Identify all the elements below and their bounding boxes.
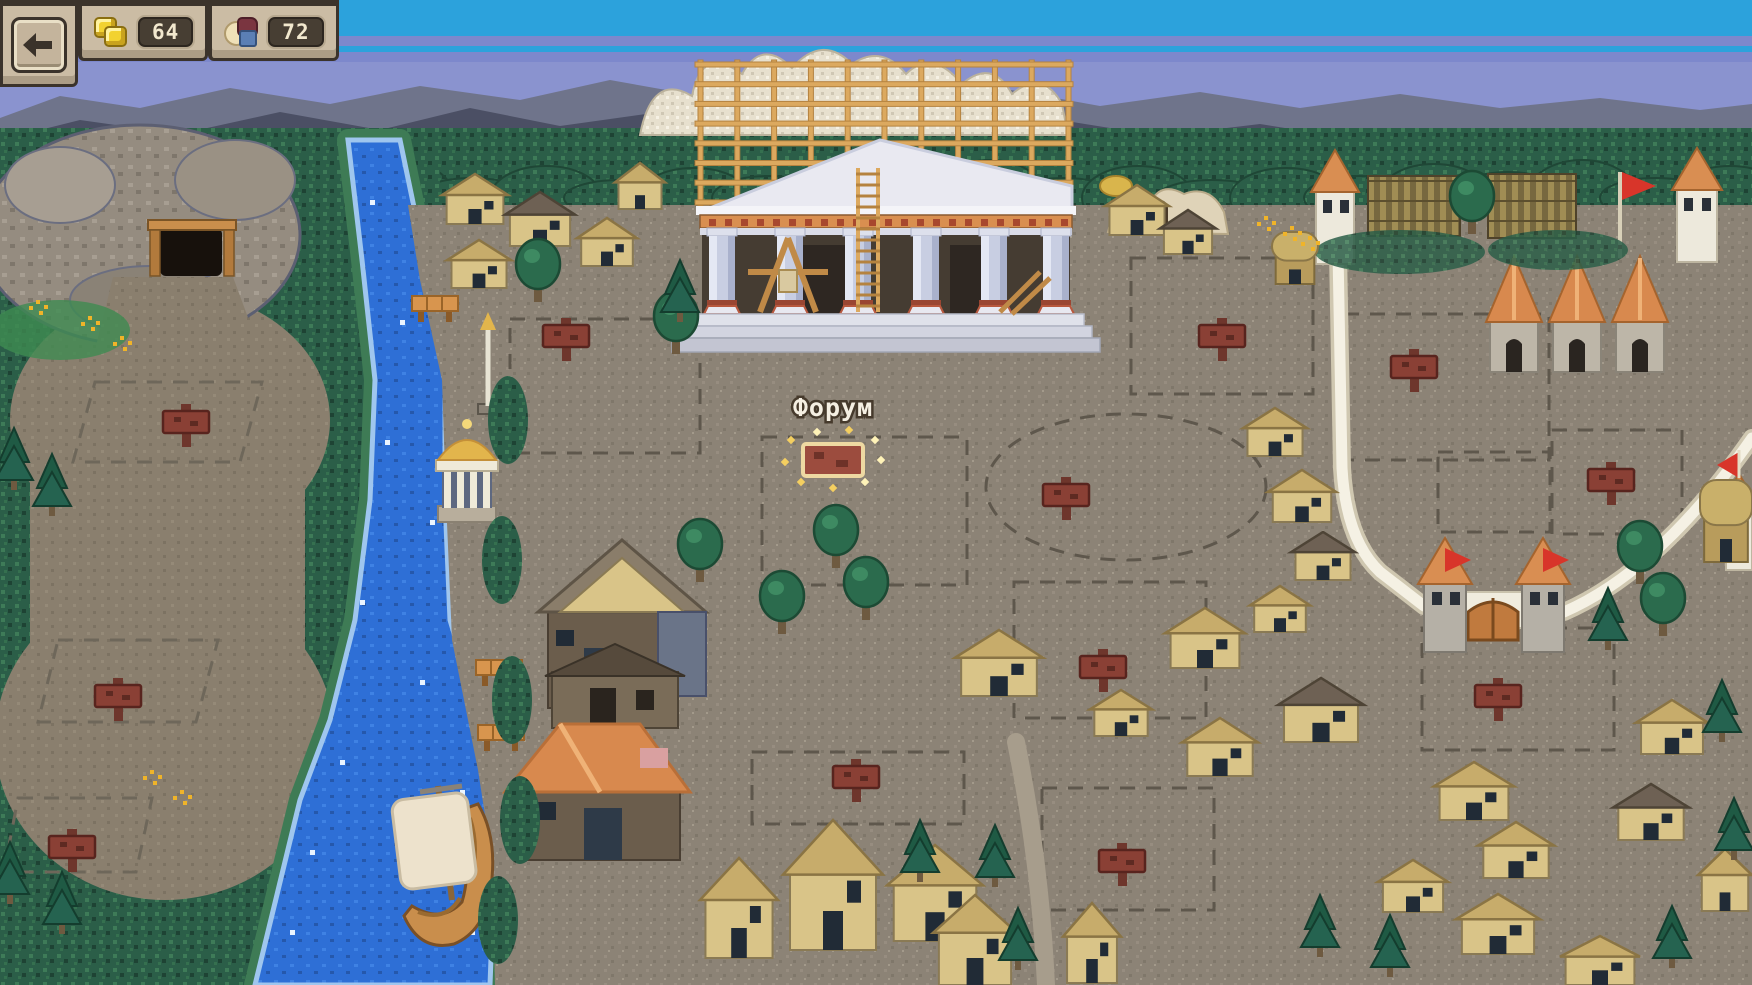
ship-sail <box>391 792 477 891</box>
arrow-left-icon <box>22 33 56 57</box>
goods-value: 72 <box>268 17 323 47</box>
ship[interactable] <box>391 786 493 945</box>
water-sparkle <box>340 760 345 765</box>
gold-counter: 64 <box>78 0 208 61</box>
temple-column <box>976 228 1012 314</box>
world-map: Форум <box>0 0 1752 985</box>
palisade-fence <box>1368 176 1460 236</box>
water-sparkle <box>385 440 390 445</box>
bank-grass <box>482 516 522 604</box>
water-sparkle <box>420 680 425 685</box>
water-sparkle <box>400 320 405 325</box>
fort-tents[interactable] <box>1486 256 1668 372</box>
water-sparkle <box>360 600 365 605</box>
scaffold-beam <box>695 101 1073 106</box>
mine-entrance[interactable] <box>160 228 222 276</box>
temple-column <box>908 228 944 314</box>
bank-grass <box>488 376 528 464</box>
temple-column <box>704 228 740 314</box>
temple-construction-site[interactable] <box>640 50 1100 352</box>
gold-coins-icon <box>94 17 130 47</box>
straw-hut <box>1700 480 1752 562</box>
water-sparkle <box>290 930 295 935</box>
scaffold-beam <box>695 121 1073 126</box>
forum-label: Форум <box>793 393 873 422</box>
water-sparkle <box>370 200 375 205</box>
frieze <box>700 215 1072 228</box>
back-button-face[interactable] <box>11 17 67 73</box>
bank-grass <box>500 776 540 864</box>
goods-counter: 72 <box>208 0 338 61</box>
water-sparkle <box>310 850 315 855</box>
game-screen: Форум 64 72 <box>0 0 1752 985</box>
temple-column <box>1038 228 1074 314</box>
scaffold-beam <box>695 82 1073 87</box>
back-button[interactable] <box>0 0 78 87</box>
water-sparkle <box>430 520 435 525</box>
scaffold-beam <box>695 62 1073 67</box>
palisade-fence <box>1488 174 1576 238</box>
goods-icon <box>224 17 260 47</box>
bank-grass <box>492 656 532 744</box>
gold-value: 64 <box>138 17 193 47</box>
bank-grass <box>478 876 518 964</box>
mine-beam <box>148 220 236 230</box>
hud-bar: 64 72 <box>0 0 339 87</box>
